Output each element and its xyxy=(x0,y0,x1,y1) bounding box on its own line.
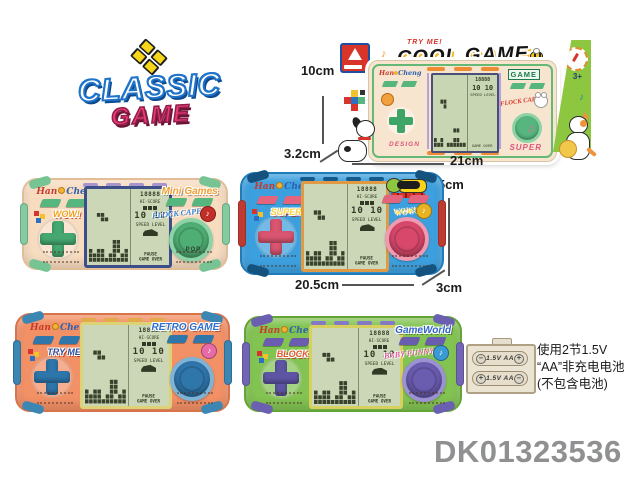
lcd-score: 18888 xyxy=(357,186,378,193)
console-blue: HanCheng SUPER xyxy=(240,172,444,275)
lcd-status-column: 18888 HI-SCORE 10 10 SPEED LEVEL PAUSE G… xyxy=(128,325,169,406)
speaker-grille xyxy=(176,251,212,263)
dim-unit-depth-label: 3cm xyxy=(436,280,462,295)
minus-icon: − xyxy=(476,354,486,364)
dim-unit-width-label: 20.5cm xyxy=(295,277,339,292)
speaker-grille xyxy=(37,392,73,404)
speaker-grille xyxy=(260,255,296,267)
lcd-hiscore-label: HI-SCORE xyxy=(357,195,377,200)
console-orange: HanCheng TRY ME!! xyxy=(15,313,230,412)
speaker-grille xyxy=(409,392,445,404)
dim-box-width-label: 21cm xyxy=(450,153,483,168)
lcd-screen: 18888 HI-SCORE 10 10 SPEED LEVEL PAUSE G… xyxy=(80,322,172,409)
product-code: DK01323536 xyxy=(434,434,622,470)
lcd-screen: 18888 HI-SCORE 10 10 SPEED LEVEL PAUSE G… xyxy=(301,181,389,271)
lcd-status-column: 18888 HI-SCORE 10 10 SPEED LEVEL PAUSE G… xyxy=(130,189,169,264)
option-buttons-right xyxy=(511,83,544,89)
tetris-playfield xyxy=(312,328,358,407)
lcd-status-column: 18888 10 10 SPEED LEVEL GAME OVER xyxy=(467,75,497,151)
option-buttons-right xyxy=(168,335,213,343)
age-badge: 3+ xyxy=(573,72,582,81)
option-buttons-right xyxy=(383,195,428,203)
option-buttons-right xyxy=(167,198,212,206)
bear-sticker xyxy=(534,94,548,108)
tiger-sticker xyxy=(381,93,394,106)
lcd-speed-level-label: SPEED LEVEL xyxy=(365,361,395,366)
battery-cell: − 1.5V AA + xyxy=(472,351,528,366)
tetris-blocks xyxy=(85,331,126,404)
lcd-score: 18888 xyxy=(140,191,161,198)
side-grip xyxy=(222,203,230,245)
super-label: SUPER xyxy=(509,143,542,152)
lcd-pause-gameover: PAUSE GAME OVER xyxy=(368,395,391,405)
lcd-hiscore-label: HI-SCORE xyxy=(138,335,158,340)
option-buttons-right xyxy=(400,337,445,345)
tetris-piece-sticker xyxy=(28,349,40,361)
brand-logo: HanCheng xyxy=(379,69,421,77)
right-logo-text: GameWorld xyxy=(395,325,451,336)
side-grip xyxy=(242,342,250,386)
speaker-grille xyxy=(392,255,428,267)
game-logo: GAME xyxy=(508,69,541,80)
handheld-console: HanCheng BLOCK xyxy=(244,316,462,412)
music-note-icon: ♪ xyxy=(381,48,387,60)
lcd-car-icon xyxy=(143,229,158,236)
flower-icon xyxy=(281,326,288,333)
music-note-icon: ♪ xyxy=(579,92,584,103)
side-grip xyxy=(438,200,446,247)
music-note-icon: ♫ xyxy=(527,124,535,135)
side-grip xyxy=(13,340,21,386)
maker-logo xyxy=(340,43,370,73)
battery-note-line2: “AA”非充电电池 xyxy=(537,359,637,376)
box-vent-slats xyxy=(427,67,499,71)
round-sticker xyxy=(416,203,432,219)
pixel-cross-sticker xyxy=(344,90,366,112)
tetris-playfield xyxy=(87,189,131,264)
lcd-pause-gameover: PAUSE GAME OVER xyxy=(137,394,160,404)
design-label: DESIGN xyxy=(389,141,420,148)
dog-sticker xyxy=(336,116,378,166)
round-sticker xyxy=(201,343,217,359)
lcd-screen: 18888 HI-SCORE 10 10 SPEED LEVEL PAUSE G… xyxy=(84,186,172,267)
battery-note: 使用2节1.5V “AA”非充电电池 (不包含电池) xyxy=(537,342,637,393)
flower-icon xyxy=(276,182,283,189)
handheld-console: HanCheng TRY ME!! xyxy=(15,313,230,412)
flower-icon xyxy=(52,323,59,330)
right-logo-text: Mini Games xyxy=(162,186,218,197)
battery-compartment: − 1.5V AA + + 1.5V AA − xyxy=(466,344,536,394)
lcd-next-piece xyxy=(360,201,374,205)
tetris-playfield xyxy=(304,184,347,268)
plus-icon: + xyxy=(476,374,486,384)
option-buttons-left xyxy=(264,338,309,346)
lcd-hiscore-label: HI-SCORE xyxy=(140,200,160,205)
speaker-grille xyxy=(43,251,79,263)
right-logo-text: RETRO GAME xyxy=(151,322,219,333)
dpad xyxy=(387,107,415,135)
option-buttons-left xyxy=(258,196,303,204)
speaker-grille xyxy=(266,392,302,404)
option-buttons-left xyxy=(41,199,86,207)
lcd-car-icon xyxy=(141,365,156,372)
lcd-screen: 18888 HI-SCORE 10 10 SPEED LEVEL PAUSE G… xyxy=(309,325,402,410)
lcd-car-icon xyxy=(360,224,375,231)
console-cream: HanCheng WOW! xyxy=(22,178,228,270)
lcd-speed-level-label: SPEED LEVEL xyxy=(134,358,164,363)
cat-sticker xyxy=(557,112,597,170)
lcd-next-piece xyxy=(373,345,387,349)
tetris-playfield xyxy=(433,75,467,151)
dim-unit-width-line xyxy=(342,284,414,286)
lcd-speed-level-label: SPEED LEVEL xyxy=(470,93,495,97)
lcd-gameover-label: GAME OVER xyxy=(472,144,493,148)
dim-unit-height-line xyxy=(448,198,450,276)
side-grip xyxy=(456,342,464,386)
lcd-status-column: 18888 HI-SCORE 10 10 SPEED LEVEL PAUSE G… xyxy=(358,328,399,407)
product-sheet: CLASSIC GAME ♪ TRY ME! COOL GAME HanChen… xyxy=(0,0,640,480)
box-front: HanCheng DESIGN xyxy=(368,60,557,162)
battery-cell: + 1.5V AA − xyxy=(472,371,528,386)
round-sticker xyxy=(433,345,449,361)
side-grip xyxy=(20,203,28,245)
battery-note-line3: (不包含电池) xyxy=(537,376,637,393)
tetris-blocks xyxy=(89,195,129,262)
lcd-hiscore-label: HI-SCORE xyxy=(369,338,389,343)
panel-divider xyxy=(427,73,429,149)
lcd-score: 18888 xyxy=(369,330,390,337)
option-buttons-left xyxy=(34,336,79,344)
panel-divider xyxy=(499,73,501,149)
lcd-next-piece xyxy=(143,206,157,210)
lcd-level-digits: 10 10 xyxy=(133,347,165,357)
lcd-next-piece xyxy=(142,342,156,346)
classic-game-logo: CLASSIC GAME xyxy=(56,41,245,150)
tetris-playfield xyxy=(83,325,128,406)
speaker-grille xyxy=(177,392,213,404)
option-buttons-left xyxy=(383,81,416,87)
lcd-status-column: 18888 HI-SCORE 10 10 SPEED LEVEL PAUSE G… xyxy=(347,184,386,268)
lcd-pause-gameover: PAUSE GAME OVER xyxy=(139,253,162,263)
lcd-speed-level-label: SPEED LEVEL xyxy=(352,218,382,223)
tetris-blocks xyxy=(434,78,466,150)
lcd-speed-level-label: SPEED LEVEL xyxy=(135,223,165,228)
dim-box-width-line xyxy=(352,163,444,165)
dim-box-height-label: 10cm xyxy=(301,63,334,78)
lcd-score: 18888 xyxy=(475,77,490,83)
battery-note-line1: 使用2节1.5V xyxy=(537,342,637,359)
lcd-screen: 18888 10 10 SPEED LEVEL GAME OVER xyxy=(431,73,499,153)
lcd-level-digits: 10 10 xyxy=(351,206,383,216)
flower-icon xyxy=(58,187,65,194)
tetris-blocks xyxy=(306,190,345,266)
lcd-level-digits: 10 10 xyxy=(472,84,493,92)
handheld-console: HanCheng WOW! xyxy=(22,178,228,270)
lcd-pause-gameover: PAUSE GAME OVER xyxy=(356,257,379,267)
tetris-blocks xyxy=(314,334,356,405)
side-grip xyxy=(238,200,246,247)
side-grip xyxy=(224,340,232,386)
plus-icon: + xyxy=(514,354,524,364)
compass-badge xyxy=(564,47,588,71)
dim-box-depth-label: 3.2cm xyxy=(284,146,321,161)
console-green: HanCheng BLOCK xyxy=(244,316,462,412)
dim-box-height-line xyxy=(322,96,324,144)
handheld-console: HanCheng SUPER xyxy=(240,172,444,275)
round-sticker xyxy=(200,206,216,222)
minus-icon: − xyxy=(514,374,524,384)
lcd-car-icon xyxy=(372,368,387,375)
